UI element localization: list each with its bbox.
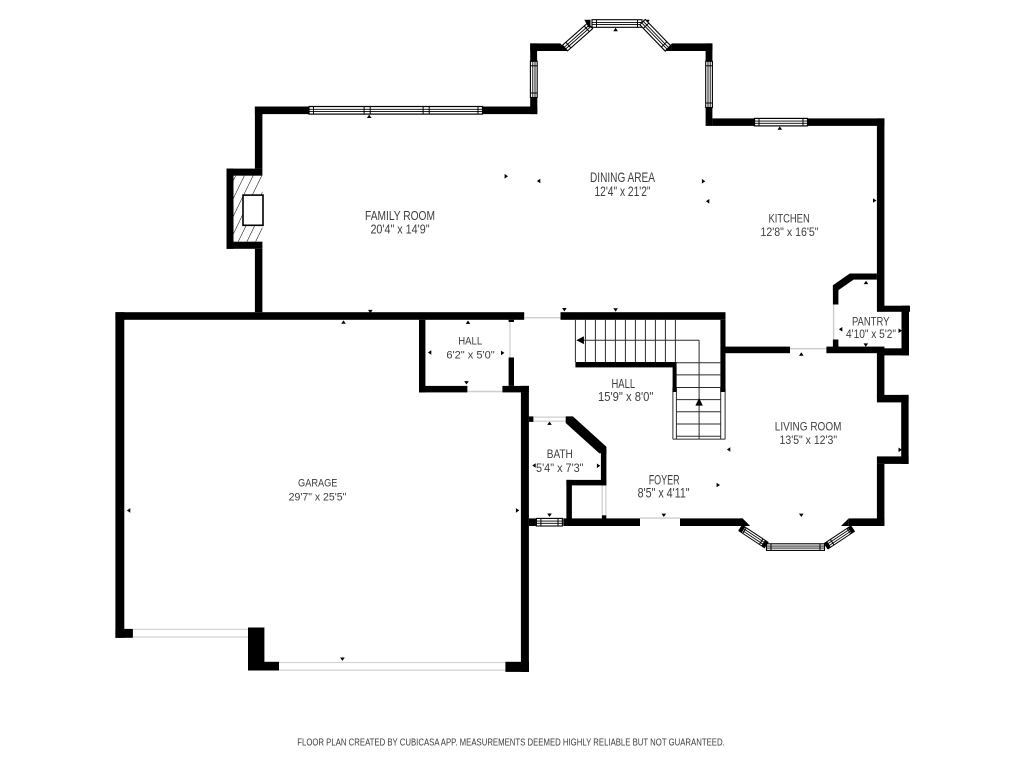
svg-text:KITCHEN: KITCHEN	[768, 213, 809, 226]
svg-text:HALL: HALL	[458, 336, 482, 348]
svg-text:8'5" x 4'11": 8'5" x 4'11"	[638, 486, 690, 501]
svg-text:4'10" x 5'2": 4'10" x 5'2"	[846, 327, 896, 341]
svg-text:6'2" x 5'0": 6'2" x 5'0"	[446, 349, 494, 361]
svg-text:5'4" x 7'3": 5'4" x 7'3"	[536, 461, 584, 475]
svg-text:15'9" x 8'0": 15'9" x 8'0"	[598, 390, 653, 404]
svg-text:20'4" x 14'9": 20'4" x 14'9"	[370, 221, 429, 236]
svg-text:29'7" x 25'5": 29'7" x 25'5"	[289, 492, 347, 504]
svg-text:BATH: BATH	[547, 447, 573, 461]
svg-text:FLOOR PLAN CREATED BY CUBICASA: FLOOR PLAN CREATED BY CUBICASA APP. MEAS…	[297, 737, 725, 748]
svg-text:12'8" x 16'5": 12'8" x 16'5"	[760, 225, 818, 239]
svg-text:LIVING ROOM: LIVING ROOM	[775, 419, 842, 433]
svg-text:HALL: HALL	[612, 377, 636, 391]
svg-text:12'4" x 21'2": 12'4" x 21'2"	[595, 184, 651, 199]
svg-text:13'5" x 12'3": 13'5" x 12'3"	[780, 433, 838, 447]
svg-text:GARAGE: GARAGE	[298, 478, 338, 490]
